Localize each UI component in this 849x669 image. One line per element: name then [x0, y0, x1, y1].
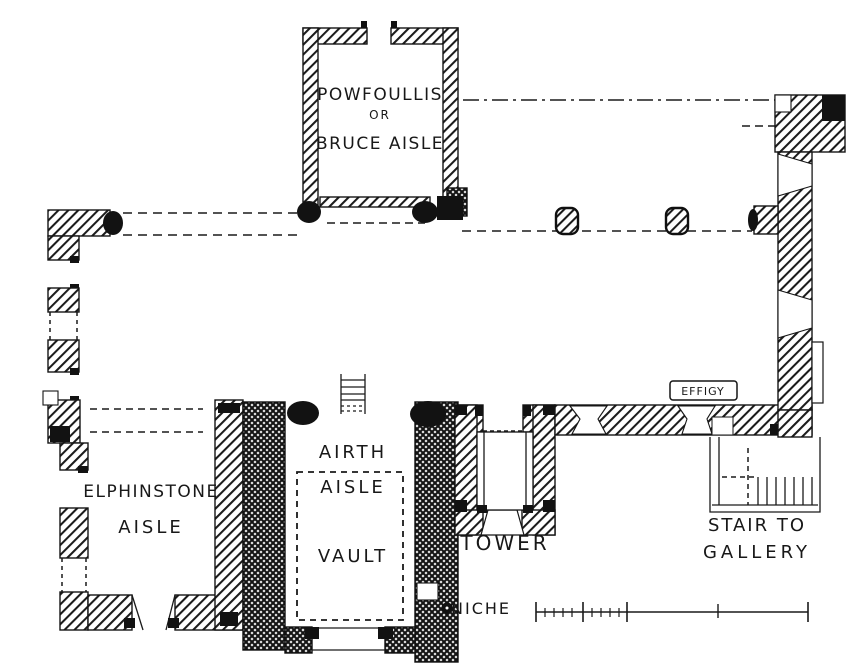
elphinstone-label-line2: AISLE — [118, 517, 183, 538]
division-wall — [243, 402, 285, 650]
powfoullis-aisle: POWFOULLIS OR BRUCE AISLE — [297, 21, 467, 223]
steps-icon — [341, 374, 365, 414]
effigy-label: EFFIGY — [681, 385, 725, 398]
arch-respond — [297, 201, 321, 223]
tower-label: TOWER — [459, 531, 549, 555]
arch-respond — [410, 401, 446, 427]
tower-interior — [477, 432, 533, 510]
stair-doorway — [712, 417, 733, 435]
arcade-respond — [103, 211, 123, 235]
arcade-pillar — [556, 208, 578, 234]
wall-notch — [43, 391, 58, 405]
arch-respond — [287, 401, 319, 425]
floor-plan-canvas: POWFOULLIS OR BRUCE AISLE — [0, 0, 849, 669]
powfoullis-label-line3: BRUCE AISLE — [316, 134, 444, 154]
nave-north-wall — [48, 210, 301, 236]
west-wall — [43, 236, 80, 443]
east-wall — [748, 95, 845, 437]
powfoullis-label-line2: OR — [369, 108, 391, 122]
niche-recess — [417, 583, 438, 600]
arch-respond — [412, 201, 438, 223]
stair-treads — [758, 477, 812, 505]
elphinstone-aisle: ELPHINSTONE AISLE — [60, 400, 243, 630]
south-wall-east: EFFIGY — [555, 381, 812, 435]
door-jamb-tick — [391, 21, 397, 28]
buttress — [812, 342, 823, 403]
tower: TOWER — [455, 405, 555, 555]
nave-east-arcade — [462, 100, 775, 234]
airth-label-line2: AISLE — [320, 477, 385, 498]
arch-band — [320, 197, 430, 207]
door-jamb-tick — [361, 21, 367, 28]
stair-to-gallery: STAIR TO GALLERY — [703, 437, 820, 563]
vault-label: VAULT — [318, 546, 388, 567]
powfoullis-label-line1: POWFOULLIS — [317, 85, 443, 105]
elphinstone-label-line1: ELPHINSTONE — [83, 482, 219, 502]
arcade-pillar — [666, 208, 688, 234]
floor-plan-page: POWFOULLIS OR BRUCE AISLE — [0, 0, 849, 669]
stair-label-line1: STAIR TO — [708, 515, 806, 536]
stair-label-line2: GALLERY — [703, 542, 811, 563]
scale-bar — [536, 602, 808, 622]
niche-label: NICHE — [451, 599, 511, 618]
airth-label-line1: AIRTH — [319, 442, 387, 463]
